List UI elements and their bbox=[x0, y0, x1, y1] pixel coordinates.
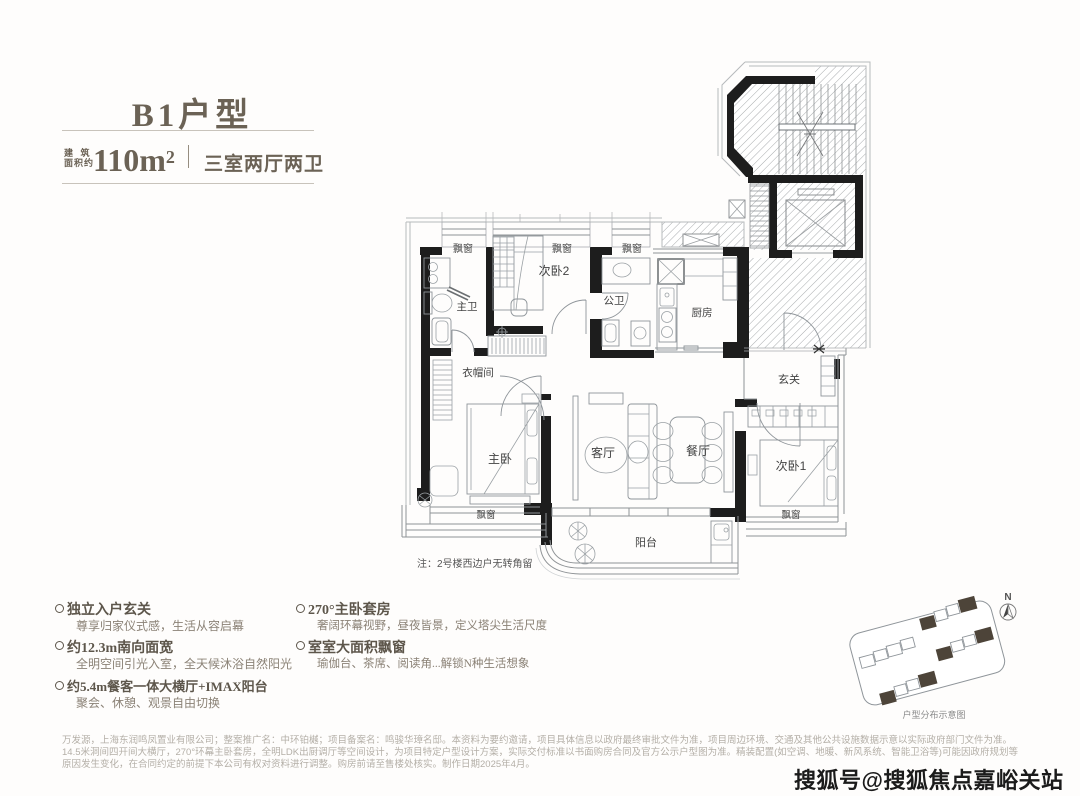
svg-text:飘窗: 飘窗 bbox=[476, 509, 495, 521]
svg-text:公卫: 公卫 bbox=[604, 295, 625, 307]
svg-text:厨房: 厨房 bbox=[692, 306, 713, 319]
svg-text:飘窗: 飘窗 bbox=[552, 242, 572, 255]
svg-text:飘窗: 飘窗 bbox=[622, 242, 642, 255]
svg-text:注：2号楼西边户无转角留: 注：2号楼西边户无转角留 bbox=[417, 557, 533, 570]
svg-text:次卧2: 次卧2 bbox=[539, 264, 570, 278]
svg-text:飘窗: 飘窗 bbox=[453, 242, 473, 255]
svg-text:主卫: 主卫 bbox=[457, 301, 478, 313]
svg-text:餐厅: 餐厅 bbox=[686, 443, 710, 458]
svg-text:主卧: 主卧 bbox=[488, 452, 512, 466]
svg-text:玄关: 玄关 bbox=[778, 372, 800, 386]
svg-text:客厅: 客厅 bbox=[591, 445, 615, 460]
svg-text:阳台: 阳台 bbox=[635, 535, 657, 549]
svg-text:次卧1: 次卧1 bbox=[776, 459, 807, 473]
svg-text:飘窗: 飘窗 bbox=[781, 509, 800, 521]
svg-text:户型分布示意图: 户型分布示意图 bbox=[902, 709, 965, 720]
svg-text:衣帽间: 衣帽间 bbox=[462, 366, 494, 379]
svg-text:N: N bbox=[1004, 592, 1011, 603]
